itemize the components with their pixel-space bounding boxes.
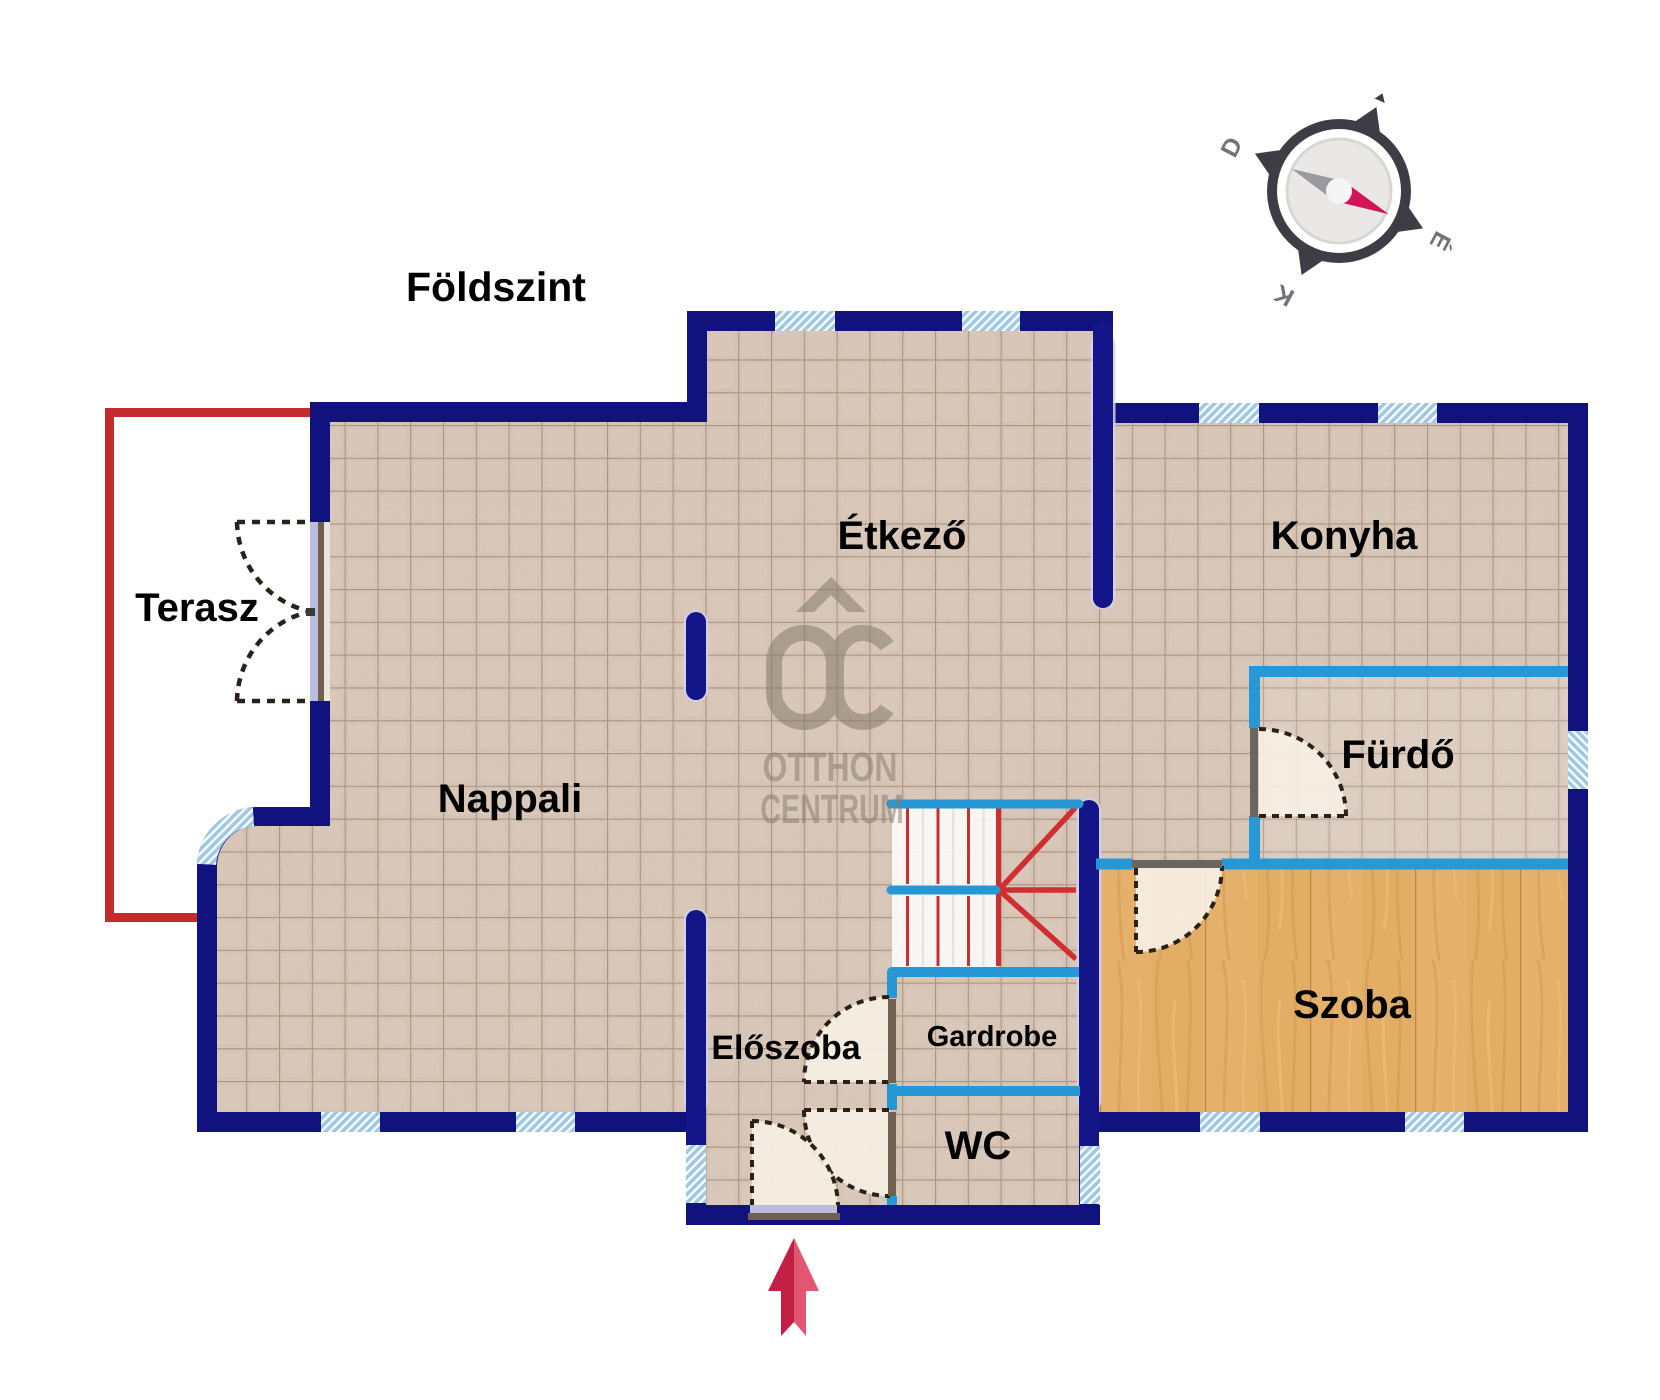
svg-text:Szoba: Szoba	[1293, 983, 1412, 1027]
svg-text:Földszint: Földszint	[406, 264, 586, 310]
svg-text:WC: WC	[945, 1124, 1012, 1168]
svg-text:Gardrobe: Gardrobe	[927, 1021, 1058, 1053]
svg-text:Előszoba: Előszoba	[711, 1029, 861, 1067]
svg-text:Konyha: Konyha	[1271, 514, 1418, 558]
svg-text:Terasz: Terasz	[135, 586, 259, 630]
svg-text:OTTHON: OTTHON	[762, 744, 897, 790]
svg-text:Étkező: Étkező	[838, 513, 967, 558]
svg-text:Nappali: Nappali	[438, 777, 582, 821]
svg-text:Fürdő: Fürdő	[1341, 733, 1454, 777]
svg-text:CENTRUM: CENTRUM	[760, 786, 903, 832]
